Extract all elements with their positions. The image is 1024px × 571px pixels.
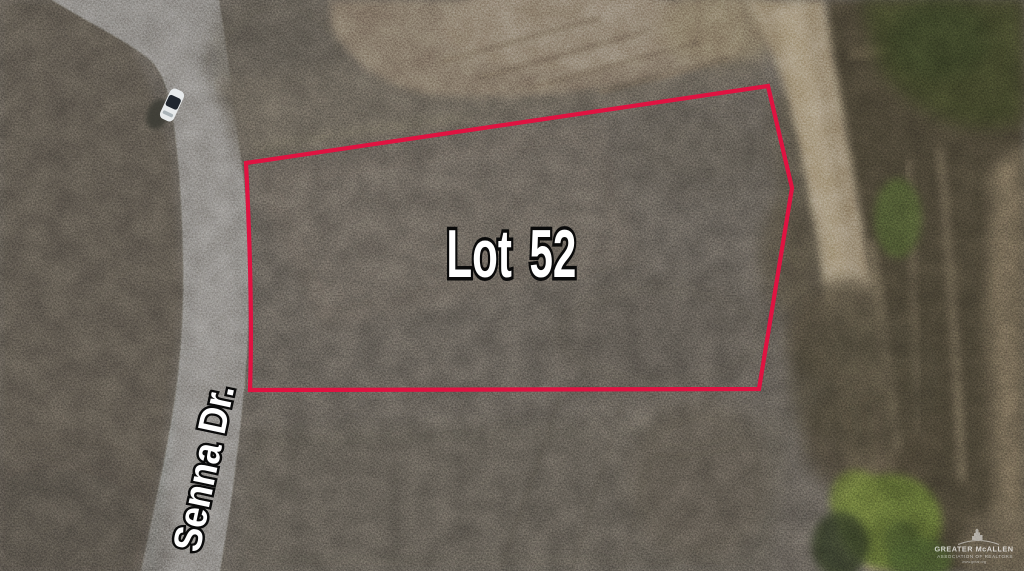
svg-text:www.gmar.org: www.gmar.org [962, 560, 986, 564]
svg-text:52: 52 [529, 216, 576, 292]
svg-text:GREATER McALLEN: GREATER McALLEN [934, 545, 1013, 554]
svg-text:Lot: Lot [446, 216, 512, 292]
svg-text:ASSOCIATION OF REALTORS: ASSOCIATION OF REALTORS [937, 554, 1013, 559]
